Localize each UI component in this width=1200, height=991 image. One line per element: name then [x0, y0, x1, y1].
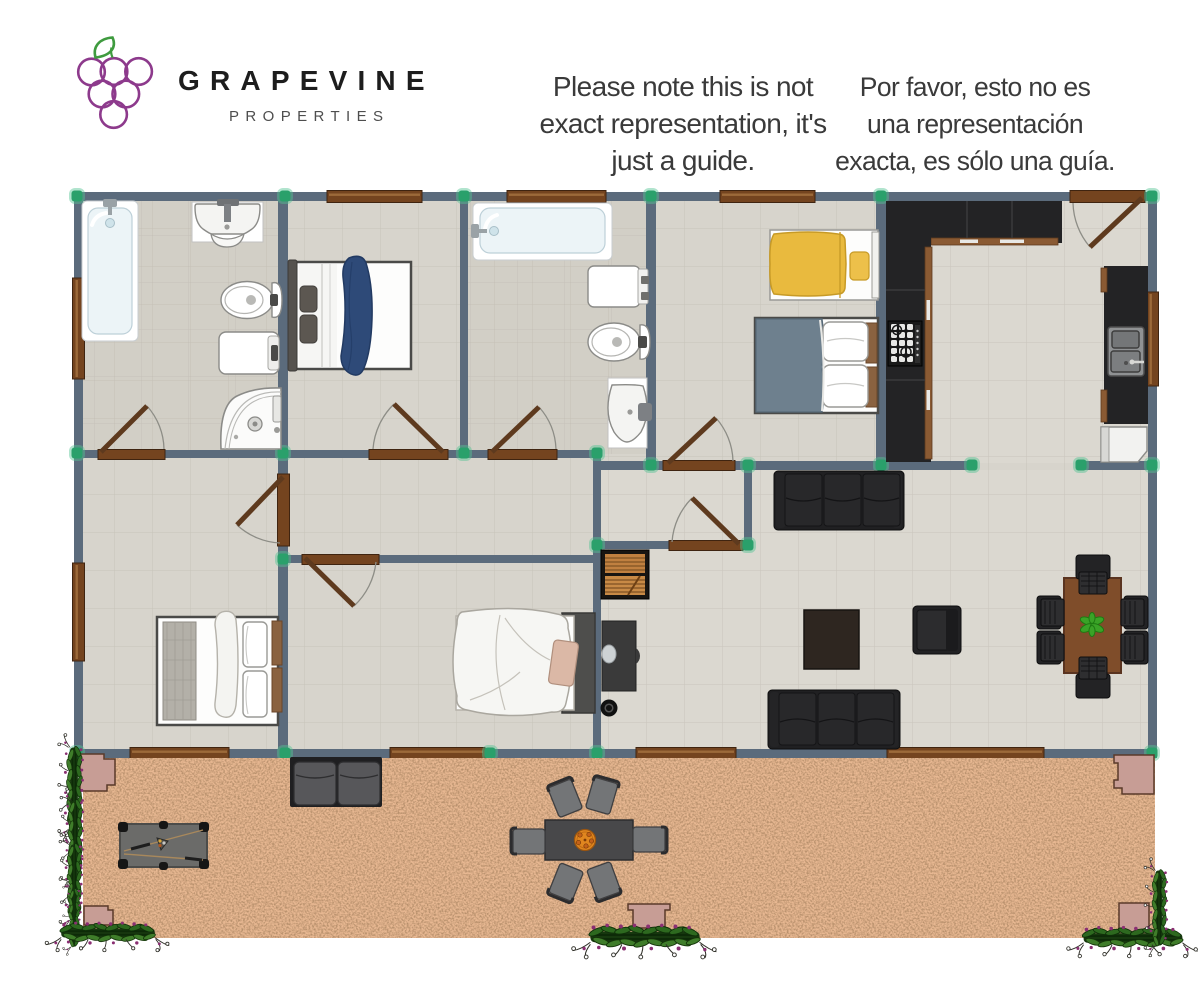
svg-text:just a guide.: just a guide.	[610, 145, 754, 176]
svg-text:PROPERTIES: PROPERTIES	[229, 108, 389, 125]
svg-text:una representación: una representación	[867, 109, 1083, 139]
svg-text:Por favor, esto no es: Por favor, esto no es	[860, 72, 1091, 102]
svg-text:Please note this is not: Please note this is not	[553, 71, 814, 102]
svg-text:exact representation, it's: exact representation, it's	[539, 108, 826, 139]
svg-text:GRAPEVINE: GRAPEVINE	[178, 65, 435, 96]
svg-text:exacta, es sólo una guía.: exacta, es sólo una guía.	[835, 146, 1115, 176]
